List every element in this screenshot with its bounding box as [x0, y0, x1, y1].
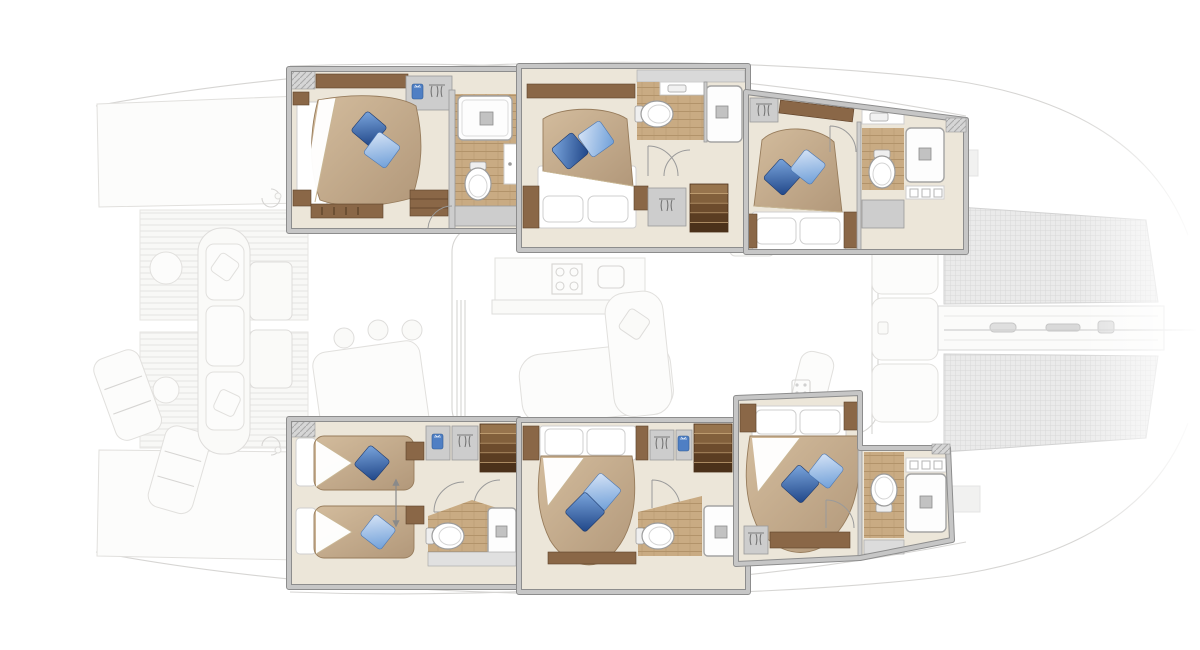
bench-cushion: [206, 306, 244, 366]
locker-handle: [878, 322, 888, 334]
head-pillow: [296, 438, 316, 486]
cabin-port-fwd: [744, 92, 966, 252]
bow-fade-overlay: [1075, 0, 1200, 650]
deck-fitting: [153, 377, 179, 403]
companionway-stairs: [694, 424, 732, 472]
companionway-stairs: [480, 424, 518, 472]
nightstand: [523, 426, 539, 460]
foot-locker: [770, 532, 850, 548]
shower-drain: [480, 112, 493, 125]
bathroom-cabinet: [862, 200, 904, 228]
head-pillow: [800, 410, 840, 434]
garment-icon: [432, 434, 443, 449]
cabin-port-mid: [519, 66, 748, 250]
wardrobe: [750, 98, 778, 122]
cabin-stbd-mid: [519, 420, 748, 592]
coffee-table: [250, 330, 292, 388]
nightstand: [634, 186, 648, 210]
double-bed: [538, 109, 636, 228]
foot-pillow: [588, 196, 628, 222]
shower-drain: [715, 526, 727, 538]
nightstand: [523, 186, 539, 228]
wall-core: [946, 118, 966, 132]
foot-pillow: [543, 196, 583, 222]
hanging-locker: [744, 526, 768, 554]
garment-icon: [412, 84, 423, 99]
shower-drain: [716, 106, 728, 118]
wardrobe: [426, 426, 450, 460]
companionway-stairs: [690, 184, 728, 232]
shelf: [527, 84, 635, 98]
foot-pillow: [800, 218, 840, 244]
wardrobe: [650, 430, 674, 460]
vanity-handle: [508, 162, 512, 166]
shower-drain: [496, 526, 507, 537]
coffee-table: [250, 262, 292, 320]
partition-wall: [857, 122, 861, 250]
head-pillow: [587, 429, 625, 455]
double-bed: [297, 96, 421, 206]
foot-pillow: [756, 218, 796, 244]
sink: [668, 85, 686, 92]
nightstand: [293, 92, 309, 105]
head-pillow: [756, 410, 796, 434]
drawer-chest: [410, 190, 448, 216]
wardrobe: [676, 430, 692, 460]
nightstand: [844, 212, 857, 248]
head-pillow: [545, 429, 583, 455]
shelf: [316, 74, 408, 88]
helm-seat: [150, 252, 182, 284]
winch: [275, 447, 281, 453]
dot: [795, 383, 798, 386]
partition-wall: [704, 82, 707, 142]
dot: [803, 383, 806, 386]
nightstand: [293, 190, 311, 206]
deck-band: [637, 70, 745, 82]
windlass: [990, 323, 1016, 332]
chair: [402, 320, 422, 340]
garment-icon: [678, 436, 689, 451]
deck-locker: [872, 364, 938, 422]
head-pillow: [296, 508, 316, 554]
deck-plan-svg: [0, 0, 1200, 650]
bathroom-cabinet: [428, 552, 516, 566]
nightstand: [636, 426, 648, 460]
bathroom-cabinet: [455, 206, 517, 226]
winch: [275, 193, 281, 199]
foot-locker: [548, 552, 636, 564]
partition-wall: [858, 448, 862, 558]
sink: [870, 113, 888, 121]
nightstand: [740, 404, 756, 432]
chair: [368, 320, 388, 340]
double-bed: [752, 129, 846, 250]
nightstand: [406, 442, 424, 460]
catamaran-deck-plan: [0, 0, 1200, 650]
sliding-door: [457, 300, 465, 424]
wall-core: [932, 444, 950, 454]
partition-wall: [449, 90, 455, 230]
port-platform: [97, 96, 305, 207]
cabin-stbd-aft: [289, 419, 519, 587]
shower-drain: [920, 496, 932, 508]
shower-bench: [906, 458, 946, 472]
chair: [334, 328, 354, 348]
wardrobe: [648, 188, 686, 226]
wall-core: [291, 71, 315, 89]
shower-drain: [919, 148, 931, 160]
cabin-port-aft: [289, 69, 519, 231]
wall-core: [291, 421, 315, 437]
wardrobe: [452, 426, 478, 460]
nightstand: [406, 506, 424, 524]
deck-hatch: [950, 486, 980, 512]
